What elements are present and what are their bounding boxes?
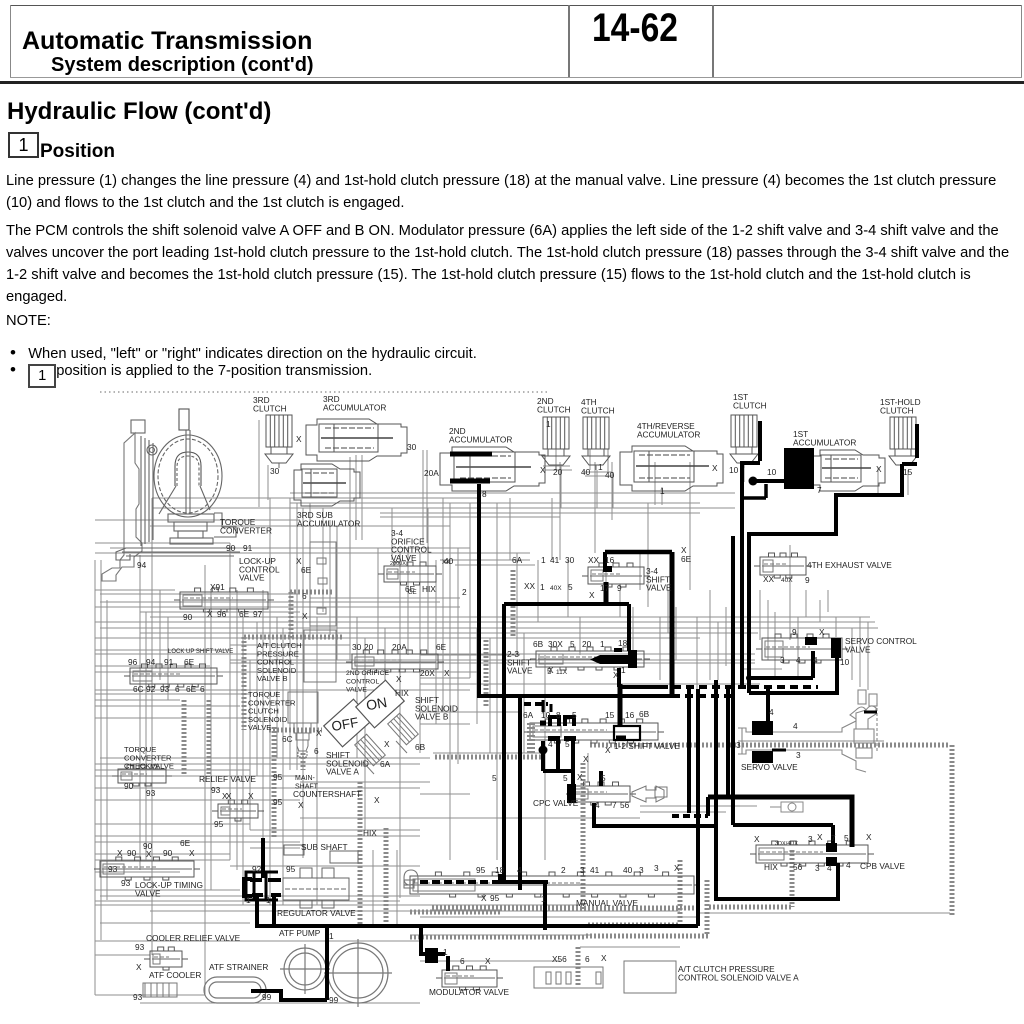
svg-text:4: 4 — [796, 655, 801, 665]
svg-text:4: 4 — [595, 800, 600, 810]
svg-text:1: 1 — [598, 462, 603, 472]
svg-text:4: 4 — [846, 860, 851, 870]
svg-text:6: 6 — [302, 591, 307, 601]
svg-text:X: X — [298, 800, 304, 810]
svg-text:3: 3 — [808, 834, 813, 844]
svg-text:ACCUMULATOR: ACCUMULATOR — [297, 518, 360, 528]
svg-text:1: 1 — [246, 895, 251, 905]
svg-text:96: 96 — [217, 609, 227, 619]
svg-text:XX: XX — [588, 555, 600, 565]
svg-text:93: 93 — [121, 878, 131, 888]
svg-text:9: 9 — [617, 583, 622, 593]
svg-text:5: 5 — [572, 710, 577, 720]
svg-text:20A: 20A — [392, 642, 407, 652]
svg-text:1: 1 — [546, 419, 551, 429]
svg-text:30: 30 — [352, 642, 362, 652]
svg-text:20X: 20X — [420, 668, 435, 678]
svg-text:4: 4 — [827, 863, 832, 873]
svg-text:93: 93 — [108, 864, 118, 874]
svg-text:CPB VALVE: CPB VALVE — [860, 861, 905, 871]
svg-text:41: 41 — [590, 865, 600, 875]
svg-text:18: 18 — [495, 865, 505, 875]
svg-text:10: 10 — [840, 657, 850, 667]
svg-text:6C: 6C — [133, 684, 144, 694]
svg-text:40: 40 — [623, 865, 633, 875]
svg-text:30X: 30X — [548, 639, 563, 649]
svg-text:8: 8 — [556, 710, 561, 720]
svg-text:ATF STRAINER: ATF STRAINER — [209, 962, 268, 972]
svg-text:X: X — [589, 590, 595, 600]
svg-text:40: 40 — [605, 470, 615, 480]
svg-text:X: X — [866, 832, 872, 842]
svg-text:X: X — [117, 848, 123, 858]
svg-text:6: 6 — [460, 956, 465, 966]
svg-text:VALVE: VALVE — [135, 888, 161, 898]
svg-text:30: 30 — [565, 555, 575, 565]
svg-text:XX: XX — [524, 581, 536, 591]
svg-text:3: 3 — [580, 865, 585, 875]
svg-text:93: 93 — [146, 788, 156, 798]
svg-text:6A: 6A — [512, 555, 523, 565]
svg-text:REGULATOR VALVE: REGULATOR VALVE — [277, 908, 356, 918]
svg-text:94: 94 — [146, 657, 156, 667]
svg-text:HIX: HIX — [764, 862, 778, 872]
svg-text:HIX: HIX — [395, 688, 409, 698]
svg-text:X: X — [302, 611, 308, 621]
svg-text:3: 3 — [780, 655, 785, 665]
svg-text:15: 15 — [903, 467, 913, 477]
svg-text:90: 90 — [163, 848, 173, 858]
svg-text:95: 95 — [490, 893, 500, 903]
svg-text:X: X — [876, 464, 882, 474]
svg-text:10: 10 — [767, 467, 777, 477]
svg-text:6B: 6B — [639, 709, 650, 719]
svg-text:95: 95 — [273, 797, 283, 807]
svg-text:VALVE: VALVE — [346, 687, 367, 694]
svg-text:X: X — [605, 745, 611, 755]
svg-text:X: X — [712, 463, 718, 473]
svg-text:X56: X56 — [552, 954, 567, 964]
svg-text:2000X: 2000X — [390, 561, 406, 567]
svg-text:91: 91 — [164, 657, 174, 667]
svg-text:3: 3 — [736, 740, 741, 750]
svg-text:1: 1 — [541, 555, 546, 565]
svg-text:95: 95 — [214, 819, 224, 829]
svg-text:6E: 6E — [436, 642, 447, 652]
svg-text:4: 4 — [793, 721, 798, 731]
svg-text:10: 10 — [541, 710, 551, 720]
svg-text:VALVE: VALVE — [248, 723, 271, 732]
svg-text:1: 1 — [660, 486, 665, 496]
svg-text:XX: XX — [442, 560, 450, 566]
svg-text:6: 6 — [314, 746, 319, 756]
svg-text:MANUAL VALVE: MANUAL VALVE — [576, 898, 639, 908]
svg-text:X: X — [481, 893, 487, 903]
svg-text:20A: 20A — [424, 468, 439, 478]
svg-text:X: X — [548, 665, 554, 675]
svg-text:2: 2 — [462, 587, 467, 597]
svg-text:6E: 6E — [301, 565, 312, 575]
svg-text:XX: XX — [763, 574, 775, 584]
svg-text:95: 95 — [273, 772, 283, 782]
svg-text:1: 1 — [541, 894, 546, 904]
svg-text:1: 1 — [329, 931, 334, 941]
svg-text:11X: 11X — [556, 669, 568, 676]
svg-text:X: X — [613, 670, 619, 680]
svg-text:4TH EXHAUST VALVE: 4TH EXHAUST VALVE — [807, 560, 892, 570]
svg-text:X: X — [583, 754, 589, 764]
svg-text:3: 3 — [815, 863, 820, 873]
svg-text:6E: 6E — [186, 684, 197, 694]
svg-text:8: 8 — [482, 489, 487, 499]
svg-text:94: 94 — [137, 560, 147, 570]
svg-text:X: X — [674, 863, 680, 873]
svg-text:SERVO VALVE: SERVO VALVE — [741, 762, 798, 772]
svg-text:30: 30 — [407, 442, 417, 452]
svg-text:X: X — [444, 668, 450, 678]
svg-text:7: 7 — [817, 485, 822, 495]
svg-text:20: 20 — [553, 467, 563, 477]
svg-text:RELIEF VALVE: RELIEF VALVE — [199, 774, 256, 784]
svg-text:16: 16 — [605, 555, 615, 565]
svg-text:3: 3 — [796, 750, 801, 760]
svg-text:93: 93 — [160, 684, 170, 694]
svg-text:VALVE: VALVE — [646, 583, 672, 593]
svg-text:16: 16 — [625, 710, 635, 720]
svg-text:6E: 6E — [239, 609, 250, 619]
svg-text:99: 99 — [329, 995, 339, 1005]
svg-text:X: X — [396, 674, 402, 684]
svg-text:X: X — [248, 791, 254, 801]
svg-text:X91: X91 — [210, 582, 225, 592]
svg-text:20: 20 — [582, 639, 592, 649]
svg-text:CLUTCH: CLUTCH — [537, 404, 571, 414]
svg-text:X: X — [296, 434, 302, 444]
svg-text:5: 5 — [570, 639, 575, 649]
svg-text:X: X — [316, 728, 322, 738]
svg-text:MAIN-: MAIN- — [295, 775, 316, 782]
svg-text:1: 1 — [443, 947, 448, 957]
svg-text:4: 4 — [769, 707, 774, 717]
svg-text:X: X — [817, 832, 823, 842]
svg-text:6A: 6A — [523, 710, 534, 720]
svg-text:X: X — [577, 772, 583, 782]
svg-text:90: 90 — [127, 848, 137, 858]
svg-text:90: 90 — [183, 612, 193, 622]
svg-text:6E: 6E — [681, 554, 692, 564]
svg-text:CONTROL SOLENOID VALVE A: CONTROL SOLENOID VALVE A — [678, 972, 799, 982]
svg-text:5: 5 — [601, 773, 606, 783]
svg-text:VALVE A: VALVE A — [326, 767, 359, 777]
svg-text:CONTROL: CONTROL — [346, 678, 379, 685]
svg-text:COUNTERSHAFT: COUNTERSHAFT — [293, 789, 361, 799]
svg-text:X: X — [146, 849, 152, 859]
svg-text:1: 1 — [600, 639, 605, 649]
svg-text:3: 3 — [639, 865, 644, 875]
svg-text:56: 56 — [620, 800, 630, 810]
svg-text:1: 1 — [540, 582, 545, 592]
svg-text:5: 5 — [568, 582, 573, 592]
svg-text:SUB SHAFT: SUB SHAFT — [301, 842, 348, 852]
svg-text:HIX: HIX — [422, 584, 436, 594]
svg-text:6A: 6A — [380, 759, 391, 769]
svg-text:4: 4 — [517, 865, 522, 875]
svg-text:17: 17 — [600, 583, 610, 593]
svg-text:CLUTCH: CLUTCH — [581, 405, 615, 415]
svg-text:92: 92 — [252, 864, 262, 874]
svg-text:ACCUMULATOR: ACCUMULATOR — [793, 437, 856, 447]
svg-text:56: 56 — [793, 862, 803, 872]
svg-text:5: 5 — [844, 833, 849, 843]
svg-text:HIX: HIX — [363, 828, 377, 838]
svg-text:40: 40 — [581, 467, 591, 477]
svg-text:20: 20 — [364, 642, 374, 652]
svg-text:90: 90 — [226, 543, 236, 553]
svg-text:CLUTCH: CLUTCH — [880, 405, 914, 415]
svg-text:99: 99 — [262, 992, 272, 1002]
svg-text:9: 9 — [805, 575, 810, 585]
svg-text:90: 90 — [124, 781, 134, 791]
svg-text:97: 97 — [253, 609, 263, 619]
svg-text:X: X — [384, 739, 390, 749]
svg-text:ATF COOLER: ATF COOLER — [149, 970, 201, 980]
svg-text:MODULATOR VALVE: MODULATOR VALVE — [429, 987, 510, 997]
svg-text:1: 1 — [621, 665, 626, 675]
svg-text:ACCUMULATOR: ACCUMULATOR — [449, 434, 512, 444]
svg-text:VALVE B: VALVE B — [415, 712, 449, 722]
svg-text:93: 93 — [135, 942, 145, 952]
svg-text:3: 3 — [654, 863, 659, 873]
svg-text:X: X — [819, 627, 825, 637]
svg-text:ACCUMULATOR: ACCUMULATOR — [323, 402, 386, 412]
svg-text:1: 1 — [266, 895, 271, 905]
svg-text:15: 15 — [605, 710, 615, 720]
svg-text:95: 95 — [476, 865, 486, 875]
svg-text:6E: 6E — [184, 657, 195, 667]
svg-text:X: X — [222, 791, 228, 801]
svg-text:3DX/4DX: 3DX/4DX — [775, 841, 798, 847]
svg-text:5: 5 — [565, 739, 570, 749]
svg-text:6B: 6B — [415, 742, 426, 752]
svg-text:6B: 6B — [533, 639, 544, 649]
svg-text:ACCUMULATOR: ACCUMULATOR — [637, 429, 700, 439]
svg-text:4: 4 — [548, 739, 553, 749]
svg-text:6: 6 — [175, 684, 180, 694]
svg-text:GE: GE — [408, 590, 417, 596]
svg-text:2: 2 — [561, 865, 566, 875]
svg-text:93: 93 — [211, 785, 221, 795]
svg-text:VALVE: VALVE — [845, 644, 871, 654]
svg-text:30: 30 — [270, 466, 280, 476]
svg-text:6: 6 — [585, 954, 590, 964]
svg-text:6C: 6C — [282, 734, 293, 744]
svg-text:6E: 6E — [180, 838, 191, 848]
svg-text:41: 41 — [550, 555, 560, 565]
svg-text:X: X — [136, 962, 142, 972]
svg-text:X: X — [601, 953, 607, 963]
svg-text:93: 93 — [133, 992, 143, 1002]
svg-text:7: 7 — [612, 800, 617, 810]
svg-text:CONVERTER: CONVERTER — [220, 525, 272, 535]
svg-text:7: 7 — [831, 833, 836, 843]
svg-text:5: 5 — [492, 773, 497, 783]
svg-text:40X: 40X — [781, 577, 793, 584]
svg-text:LOCK UP SHIFT VALVE: LOCK UP SHIFT VALVE — [168, 649, 233, 655]
svg-text:X: X — [207, 609, 213, 619]
svg-text:6: 6 — [200, 684, 205, 694]
svg-text:40X: 40X — [550, 585, 562, 592]
svg-text:95: 95 — [286, 864, 296, 874]
svg-text:9: 9 — [792, 627, 797, 637]
svg-text:VALVE: VALVE — [507, 666, 533, 676]
svg-text:18: 18 — [618, 638, 628, 648]
svg-text:CLUTCH: CLUTCH — [253, 403, 287, 413]
svg-text:X: X — [485, 956, 491, 966]
svg-text:4: 4 — [813, 655, 818, 665]
svg-text:CHECKVALVE: CHECKVALVE — [124, 762, 174, 771]
svg-text:96: 96 — [128, 657, 138, 667]
svg-text:X: X — [189, 848, 195, 858]
svg-text:5: 5 — [563, 773, 568, 783]
svg-text:1-2 SHIFT VALVE: 1-2 SHIFT VALVE — [614, 741, 680, 751]
svg-text:X: X — [754, 834, 760, 844]
svg-text:ATF PUMP: ATF PUMP — [279, 928, 321, 938]
svg-text:91: 91 — [243, 543, 253, 553]
svg-text:2ND ORIFICE: 2ND ORIFICE — [346, 670, 390, 677]
svg-text:COOLER RELIEF VALVE: COOLER RELIEF VALVE — [146, 933, 241, 943]
svg-text:10: 10 — [729, 465, 739, 475]
svg-text:X: X — [540, 465, 546, 475]
svg-text:92: 92 — [146, 684, 156, 694]
svg-text:CPC VALVE: CPC VALVE — [533, 798, 579, 808]
svg-text:VALVE: VALVE — [239, 573, 265, 583]
svg-text:CLUTCH: CLUTCH — [733, 400, 767, 410]
svg-text:X: X — [374, 795, 380, 805]
svg-text:VALVE B: VALVE B — [257, 674, 288, 683]
